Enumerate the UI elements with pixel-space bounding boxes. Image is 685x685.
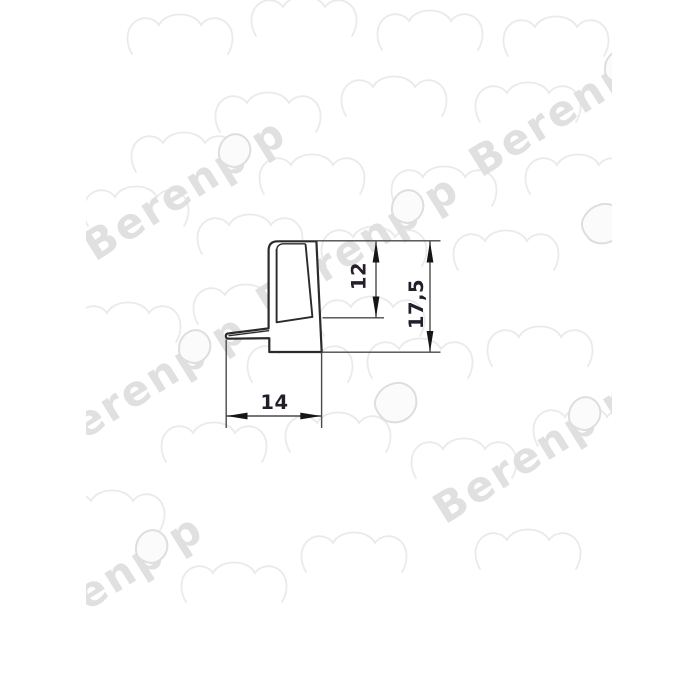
bear-head-watermark [453, 231, 558, 271]
bear-head-watermark [525, 155, 630, 195]
bear-head-watermark [301, 533, 406, 573]
dim-total-height-label: 17,5 [405, 279, 428, 329]
watermark-text: Berenpp [424, 370, 645, 533]
dim-slot-depth-label: 12 [348, 262, 371, 290]
watermark-text: Berenpp [34, 303, 255, 466]
watermark-layer: BerenppBerenppBerenppBerenppBerenppBeren… [0, 0, 681, 666]
bear-head-watermark [75, 303, 180, 343]
bear-head-watermark [161, 423, 266, 463]
bear-head-watermark [127, 15, 232, 55]
bear-head-watermark [59, 491, 164, 531]
drop-watermark [375, 383, 416, 422]
arrow-17-5-up [427, 242, 434, 263]
profile-drawing [226, 241, 322, 352]
arrow-14-left [227, 413, 248, 420]
watermark-text-tail: p [627, 23, 681, 82]
arrow-12-down [373, 297, 380, 318]
dim-width-label: 14 [260, 391, 288, 414]
bear-head-watermark [475, 530, 580, 570]
bear-head-watermark [341, 77, 446, 117]
watermark-text: Berenpp [460, 23, 681, 186]
drawing-canvas: BerenppBerenppBerenppBerenppBerenppBeren… [0, 0, 685, 685]
bear-head-watermark [251, 0, 356, 36]
drop-watermark [582, 204, 623, 243]
bear-head-watermark [377, 11, 482, 51]
bear-head-watermark [367, 339, 472, 379]
product-drawing-image: BerenppBerenppBerenppBerenppBerenppBeren… [0, 0, 685, 685]
bear-head-watermark [181, 563, 286, 603]
bear-head-watermark [487, 327, 592, 367]
watermark-text: Berenpp [0, 503, 212, 666]
bear-head-watermark [503, 17, 608, 57]
watermark-text-main: Berenp [460, 47, 643, 186]
